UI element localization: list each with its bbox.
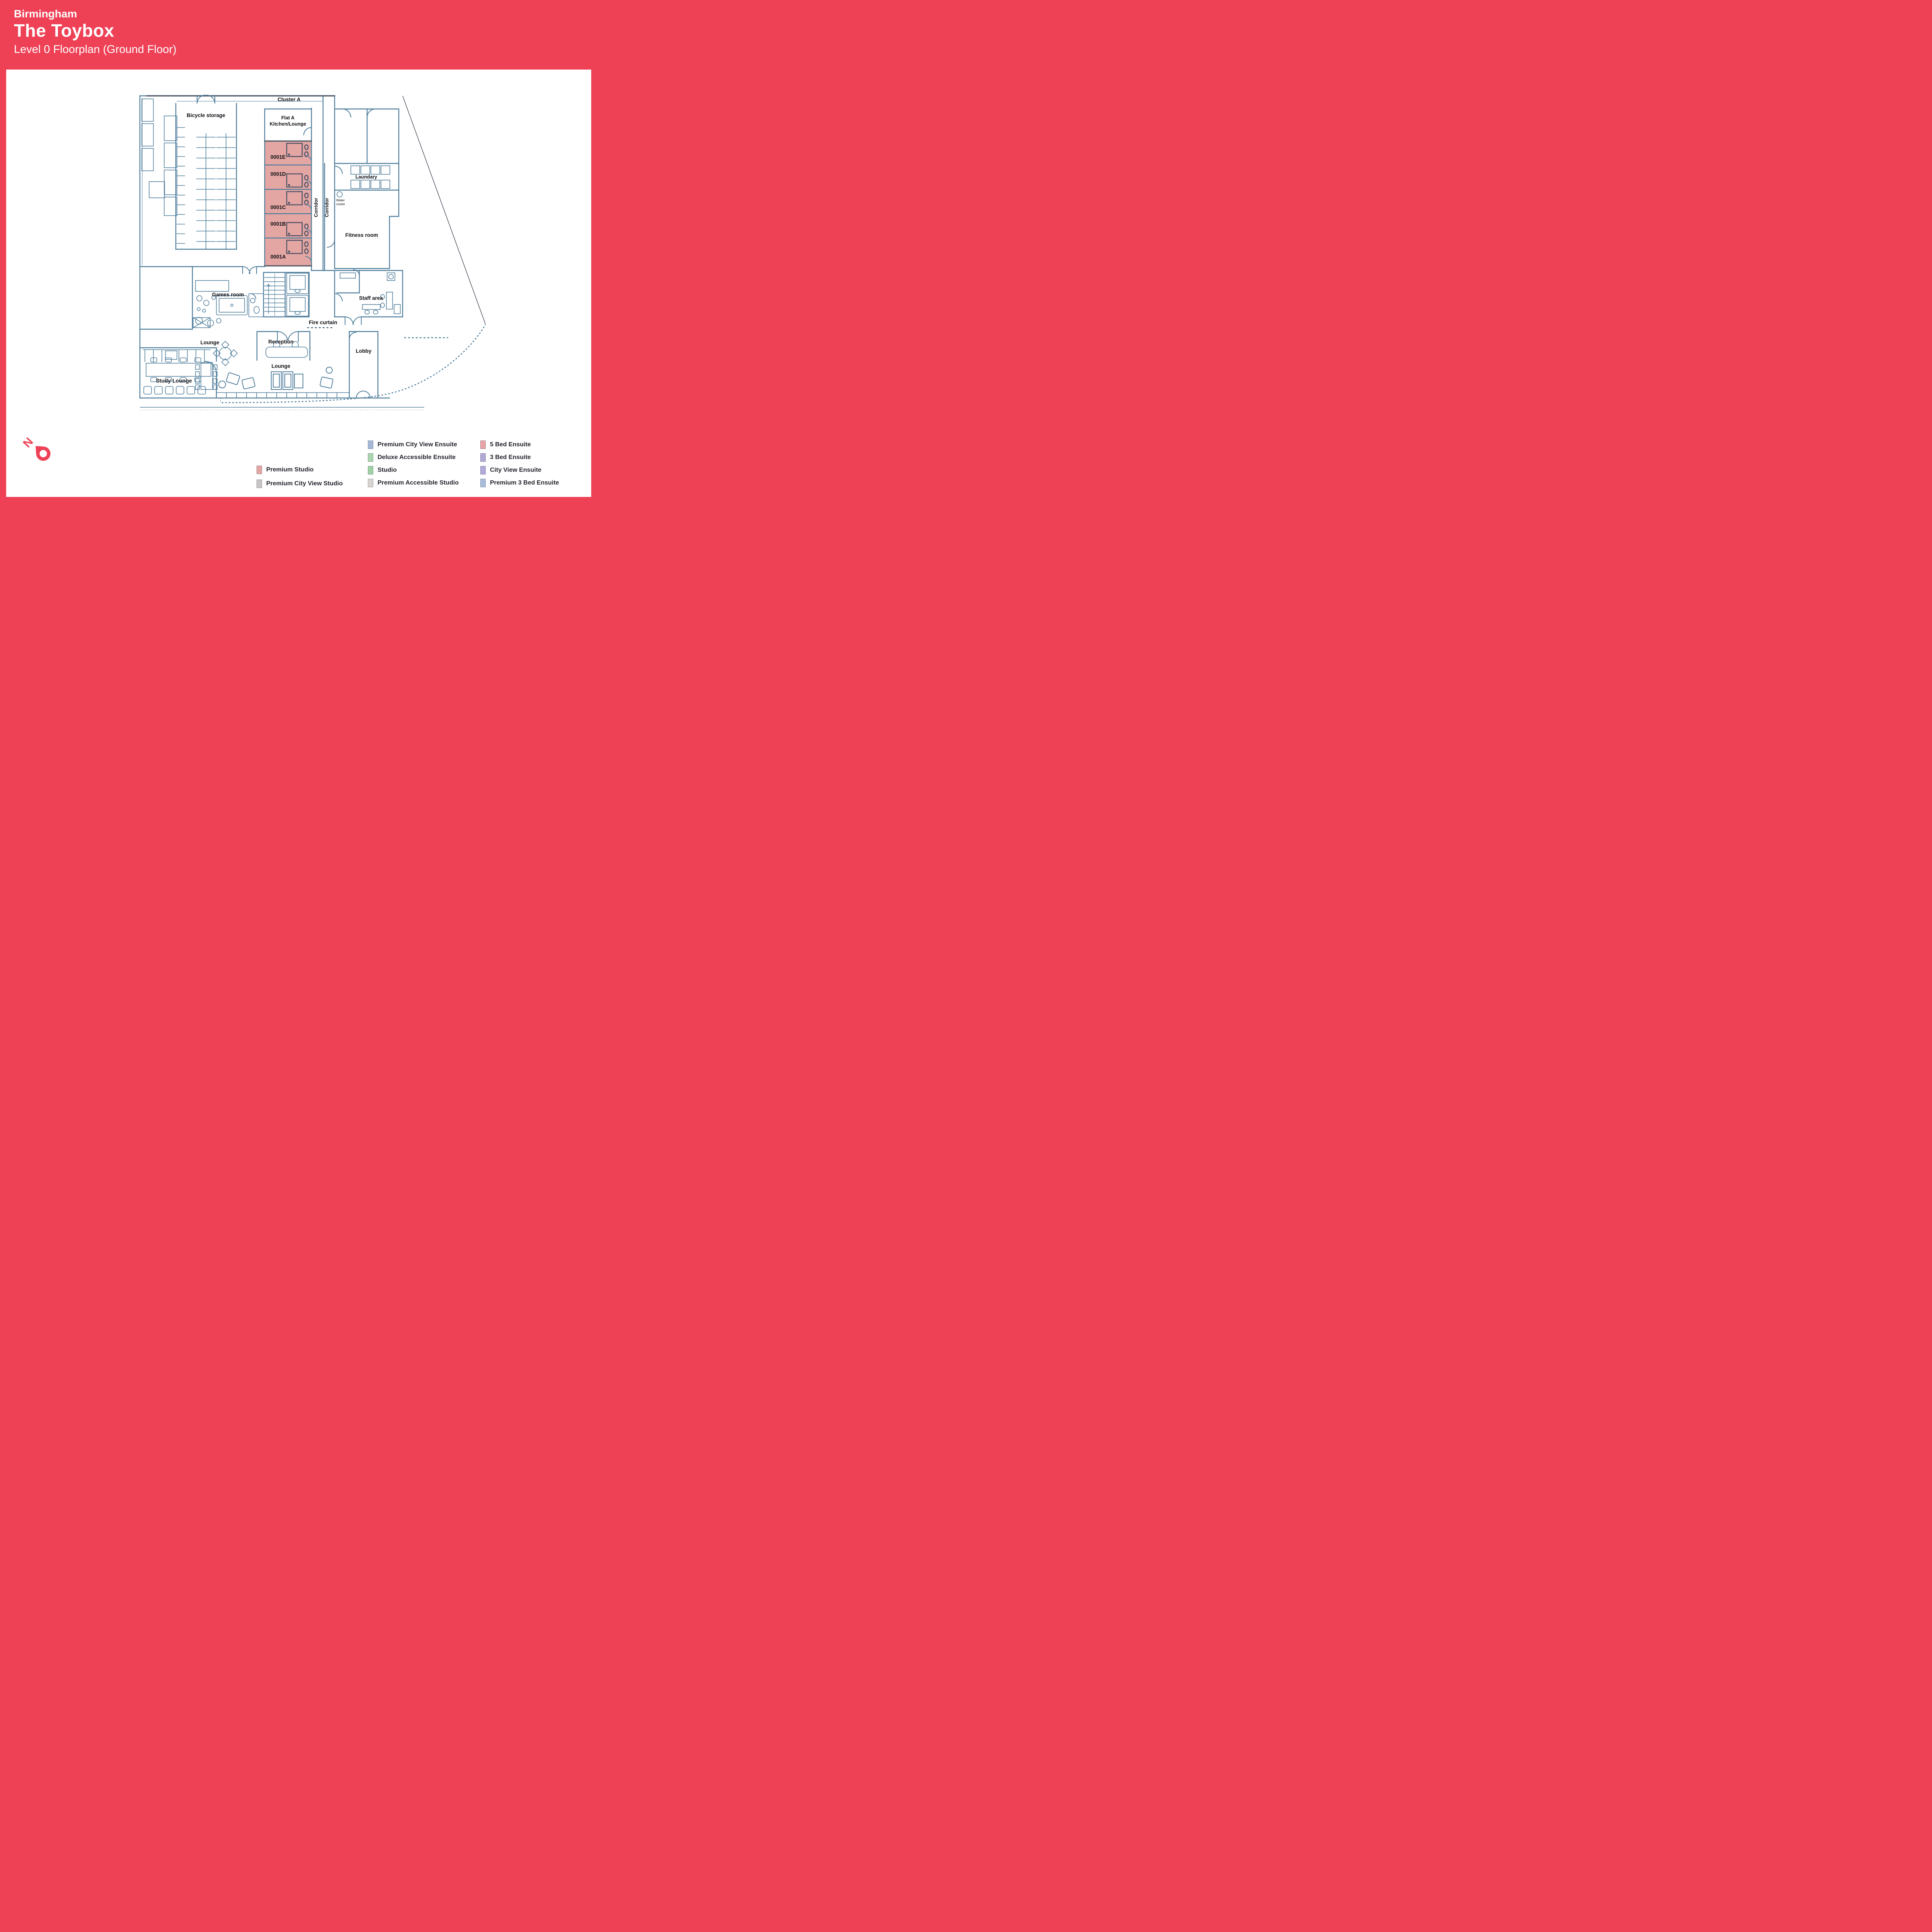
- label-fitness-room: Fitness room: [345, 232, 378, 238]
- legend-swatch-3-bed-ensuite: [480, 453, 486, 462]
- label-reception: Reception: [268, 339, 293, 345]
- legend-label-3-bed-ensuite: 3 Bed Ensuite: [490, 454, 531, 461]
- site-boundary: [140, 96, 485, 410]
- legend-swatch-studio: [368, 466, 373, 474]
- legend-item-premium-city-view-ensuite: Premium City View Ensuite: [368, 438, 459, 451]
- north-compass-icon: N: [20, 435, 53, 464]
- legend-label-premium-studio: Premium Studio: [266, 466, 314, 473]
- wc-room: [249, 294, 264, 317]
- legend-item-premium-city-view-studio: Premium City View Studio: [257, 477, 343, 491]
- staff-furniture: [340, 273, 400, 314]
- legend-swatch-deluxe-accessible-ensuite: [368, 453, 373, 462]
- legend-column-2: Premium City View Ensuite Deluxe Accessi…: [368, 438, 459, 489]
- legend-item-premium-studio: Premium Studio: [257, 463, 343, 477]
- legend-column-3: 5 Bed Ensuite 3 Bed Ensuite City View En…: [480, 438, 559, 489]
- legend-swatch-premium-city-view-ensuite: [368, 440, 373, 449]
- legend-swatch-city-view-ensuite: [480, 466, 486, 474]
- label-fire-curtain: Fire curtain: [309, 320, 337, 325]
- label-room-0001d: 0001D: [270, 171, 286, 177]
- label-room-0001e: 0001E: [270, 154, 286, 160]
- legend-label-premium-city-view-studio: Premium City View Studio: [266, 480, 343, 487]
- label-games-room: Games room: [212, 292, 244, 298]
- label-staff-area: Staff area: [359, 295, 383, 301]
- lounge-south-furniture: [219, 367, 333, 389]
- legend-label-deluxe-accessible-ensuite: Deluxe Accessible Ensuite: [378, 454, 456, 461]
- label-lounge-south: Lounge: [272, 363, 291, 369]
- label-room-0001c: 0001C: [270, 204, 286, 210]
- legend-swatch-premium-accessible-studio: [368, 479, 373, 487]
- label-water-cooler-1: Water: [336, 198, 345, 202]
- label-flat-a: Flat A: [281, 115, 294, 121]
- label-room-0001a: 0001A: [270, 254, 286, 260]
- legend-label-studio: Studio: [378, 467, 397, 474]
- stairs: [264, 273, 285, 316]
- room-fill-0001e: [265, 141, 311, 165]
- label-corridor-1: Corridor: [313, 198, 319, 217]
- label-corridor-2: Corridor: [324, 198, 330, 217]
- north-letter: N: [20, 435, 36, 450]
- label-bicycle-storage: Bicycle storage: [187, 112, 225, 118]
- legend-swatch-premium-city-view-studio: [257, 480, 262, 488]
- label-lobby: Lobby: [356, 348, 372, 354]
- label-flat-a-kitchen: Kitchen/Lounge: [270, 121, 306, 127]
- legend-label-5-bed-ensuite: 5 Bed Ensuite: [490, 441, 531, 448]
- label-cluster-a: Cluster A: [277, 97, 301, 102]
- label-study-lounge: Study Lounge: [156, 378, 192, 384]
- legend-item-city-view-ensuite: City View Ensuite: [480, 464, 559, 476]
- bicycle-racks: [177, 128, 236, 249]
- room-fill-0001a: [265, 238, 311, 266]
- legend-item-premium-accessible-studio: Premium Accessible Studio: [368, 476, 459, 489]
- water-cooler-icon: [337, 192, 342, 197]
- legend-column-1: Premium Studio Premium City View Studio: [257, 463, 343, 491]
- legend-label-city-view-ensuite: City View Ensuite: [490, 467, 541, 474]
- legend-item-premium-3-bed-ensuite: Premium 3 Bed Ensuite: [480, 476, 559, 489]
- label-lounge-west: Lounge: [201, 340, 219, 345]
- label-laundry: Laundary: [355, 174, 377, 180]
- brand-frame: Birmingham The Toybox Level 0 Floorplan …: [0, 0, 597, 503]
- pool-table: [216, 296, 247, 315]
- legend-swatch-5-bed-ensuite: [480, 440, 486, 449]
- legend-item-studio: Studio: [368, 464, 459, 476]
- legend-swatch-premium-studio: [257, 466, 262, 474]
- legend-label-premium-accessible-studio: Premium Accessible Studio: [378, 480, 459, 486]
- legend-label-premium-city-view-ensuite: Premium City View Ensuite: [378, 441, 457, 448]
- legend-item-5-bed-ensuite: 5 Bed Ensuite: [480, 438, 559, 451]
- label-water-cooler-2: cooler: [336, 202, 345, 206]
- legend-label-premium-3-bed-ensuite: Premium 3 Bed Ensuite: [490, 480, 559, 486]
- legend-item-3-bed-ensuite: 3 Bed Ensuite: [480, 451, 559, 464]
- label-room-0001b: 0001B: [270, 221, 286, 227]
- room-fill-0001d: [265, 165, 311, 189]
- floorplan: Cluster A Bicycle storage Flat A Kitchen…: [0, 0, 597, 503]
- legend-swatch-premium-3-bed-ensuite: [480, 479, 486, 487]
- lifts: [287, 273, 308, 316]
- legend-item-deluxe-accessible-ensuite: Deluxe Accessible Ensuite: [368, 451, 459, 464]
